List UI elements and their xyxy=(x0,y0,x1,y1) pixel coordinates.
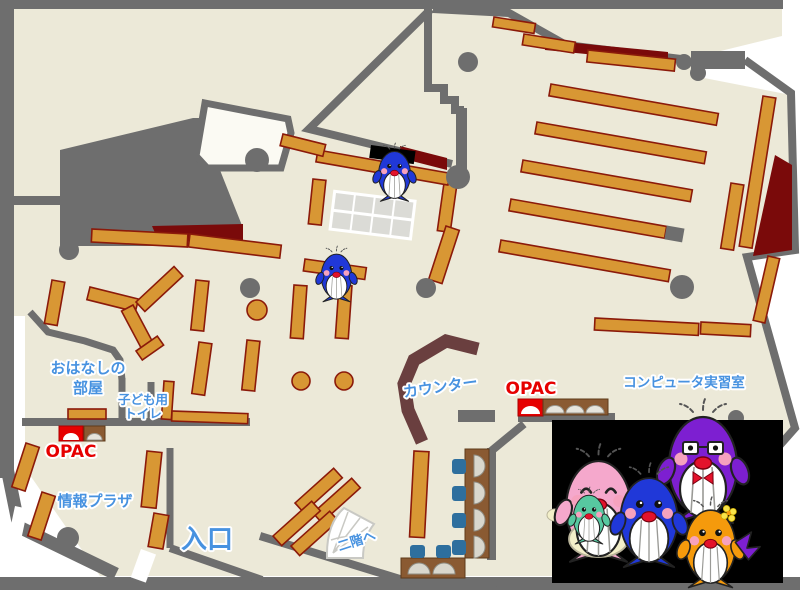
label-kids-toilet-1: 子ども用 xyxy=(118,392,168,407)
wall-left xyxy=(0,0,14,478)
opac-terminal-right xyxy=(518,399,608,416)
label-kids-toilet-2: トイレ xyxy=(124,406,162,421)
wall-vertical-bar xyxy=(456,108,467,174)
counter-side-table xyxy=(458,410,495,422)
label-ohanashi-room-1: おはなしの xyxy=(50,359,125,377)
label-computer-room: コンピュータ実習室 xyxy=(623,374,745,391)
library-floor-map: おはなしの 部屋 子ども用 トイレ OPAC 情報プラザ 入口 カウンター OP… xyxy=(0,0,800,590)
label-opac-right: OPAC xyxy=(506,379,557,399)
label-entrance: 入口 xyxy=(181,525,233,555)
wall-top xyxy=(10,0,783,9)
label-info-plaza: 情報プラザ xyxy=(57,492,132,510)
opac-terminal-left xyxy=(59,426,105,441)
wall-stub-left xyxy=(14,196,60,205)
floor-map-svg: おはなしの 部屋 子ども用 トイレ OPAC 情報プラザ 入口 カウンター OP… xyxy=(0,0,800,590)
label-opac-left: OPAC xyxy=(46,442,97,462)
label-ohanashi-room-2: 部屋 xyxy=(73,379,103,397)
